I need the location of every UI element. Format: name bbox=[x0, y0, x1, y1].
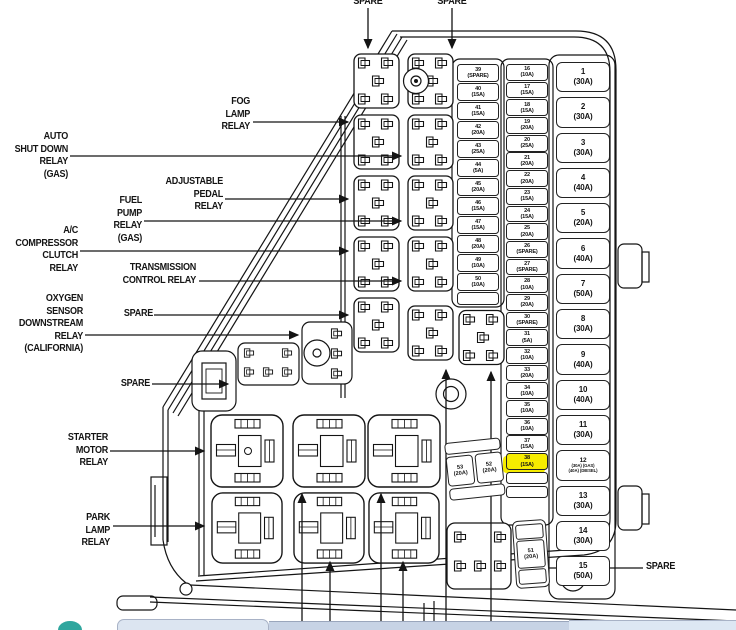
fuse-amps: (20A) bbox=[518, 553, 544, 561]
label-spare-top-right: SPARE bbox=[419, 0, 484, 8]
fuse-amps: (15A) bbox=[507, 214, 547, 220]
fuse-number: 1 bbox=[557, 67, 609, 77]
fuse-cell: 4 (40A) bbox=[556, 168, 610, 198]
fuse-cell: 50 (10A) bbox=[457, 273, 499, 291]
fuse-amps: (10A) bbox=[507, 285, 547, 291]
bottom-spare-socket bbox=[447, 523, 511, 589]
fuse-column-16-38: 16 (10A) 17 (15A) 18 (15A) 19 (20A) 20 (… bbox=[506, 64, 548, 499]
fuse-amps: (25A) bbox=[507, 143, 547, 149]
fuse-amps: (50A) bbox=[557, 571, 609, 581]
fuse-cell: 12 (30A) (GAS) (40A) (DIESEL) bbox=[556, 450, 610, 480]
fuse-cell: 26 (SPARE) bbox=[506, 241, 548, 258]
fuse-number: 3 bbox=[557, 138, 609, 148]
fuse-cell: 37 (15A) bbox=[506, 435, 548, 452]
fuse-amps: (15A) bbox=[458, 225, 498, 231]
fuse-cell: 40 (15A) bbox=[457, 83, 499, 101]
fuse-amps: (20A) bbox=[507, 125, 547, 131]
fuse-amps: (10A) bbox=[458, 282, 498, 288]
fuse-amps: (20A) bbox=[557, 218, 609, 228]
fuse-column-39-50: 39 (SPARE) 40 (15A) 41 (15A) 42 (20A) 43… bbox=[457, 64, 499, 306]
taskbar-tab[interactable] bbox=[117, 619, 269, 630]
fuse-cell: 29 (20A) bbox=[506, 294, 548, 311]
fuse-amps: (10A) bbox=[507, 408, 547, 414]
fuse-amps: (10A) bbox=[507, 355, 547, 361]
fuse-cell: 31 (5A) bbox=[506, 329, 548, 346]
fuse-cell: 32 (10A) bbox=[506, 347, 548, 364]
fuse-amps: (15A) bbox=[507, 196, 547, 202]
fuse-cell: 39 (SPARE) bbox=[457, 64, 499, 82]
label-fog-lamp-relay: FOG LAMP RELAY bbox=[164, 95, 250, 133]
fuse-number: 13 bbox=[557, 491, 609, 501]
fuse-cell: 48 (20A) bbox=[457, 235, 499, 253]
fuse-amps: (SPARE) bbox=[507, 249, 547, 255]
power-relays bbox=[211, 415, 440, 563]
fuse-amps: (20A) bbox=[458, 244, 498, 250]
fuse-number: 10 bbox=[557, 385, 609, 395]
fuse-amps: (20A) bbox=[507, 302, 547, 308]
fuse-amps: (20A) bbox=[507, 373, 547, 379]
fuse-amps: (30A) bbox=[557, 430, 609, 440]
fuse-cell: 6 (40A) bbox=[556, 238, 610, 268]
label-starter-motor-relay: STARTER MOTOR RELAY bbox=[22, 431, 108, 469]
fuse-box-diagram: SPARE SPARE FOG LAMP RELAY AUTO SHUT DOW… bbox=[0, 0, 736, 630]
fuse-cell: 20 (25A) bbox=[506, 135, 548, 152]
fuse-cell: 7 (50A) bbox=[556, 274, 610, 304]
fuse-number: 14 bbox=[557, 526, 609, 536]
fuse-cell: 28 (10A) bbox=[506, 276, 548, 293]
fuse-amps: (10A) bbox=[507, 391, 547, 397]
taskbar-strip bbox=[269, 621, 569, 630]
label-transmission-control-relay: TRANSMISSION CONTROL RELAY bbox=[67, 261, 196, 286]
fuse-amps: (40A) bbox=[557, 360, 609, 370]
fuse-amps: (15A) bbox=[458, 111, 498, 117]
fuse-cell: 8 (30A) bbox=[556, 309, 610, 339]
fuse-number: 2 bbox=[557, 102, 609, 112]
fuse-cell: 16 (10A) bbox=[506, 64, 548, 81]
fuse-amps: (30A) bbox=[557, 501, 609, 511]
fuse-cluster-52-53: 53 (20A) 52 (20A) bbox=[444, 437, 508, 503]
fuse-column-1-15: 1 (30A) 2 (30A) 3 (30A) 4 (40A) bbox=[556, 62, 610, 591]
fuse-cell-51: 51 (20A) bbox=[516, 539, 546, 569]
fuse-amps: (5A) bbox=[507, 338, 547, 344]
fuse-cell-52: 52 (20A) bbox=[474, 451, 504, 484]
fuse-cell: 38 (15A) bbox=[506, 453, 548, 470]
fuse-cell: 21 (20A) bbox=[506, 152, 548, 169]
fuse-cell: 44 (5A) bbox=[457, 159, 499, 177]
empty-fuse-slot bbox=[518, 568, 547, 585]
fuse-cell: 11 (30A) bbox=[556, 415, 610, 445]
fuse-cell: 46 (15A) bbox=[457, 197, 499, 215]
fuse-cell: 23 (15A) bbox=[506, 188, 548, 205]
fuse-cell: 33 (20A) bbox=[506, 365, 548, 382]
fuse-amps: (10A) bbox=[507, 426, 547, 432]
fuse-amps: (50A) bbox=[557, 289, 609, 299]
taskbar-strip bbox=[569, 620, 736, 630]
label-park-lamp-relay: PARK LAMP RELAY bbox=[24, 511, 110, 549]
fuse-amps: (40A) bbox=[557, 395, 609, 405]
fuse-amps: (5A) bbox=[458, 168, 498, 174]
fuse-amps: (15A) bbox=[507, 90, 547, 96]
fuse-cell: 47 (15A) bbox=[457, 216, 499, 234]
fuse-cell: 34 (10A) bbox=[506, 382, 548, 399]
fuse-amps: (20A) bbox=[477, 466, 503, 475]
fuse-amps: (40A) bbox=[557, 254, 609, 264]
fuse-amps: (30A) bbox=[557, 148, 609, 158]
fuse-amps: (20A) bbox=[507, 161, 547, 167]
fuse-amps: (20A) bbox=[458, 187, 498, 193]
fuse-cell: 49 (10A) bbox=[457, 254, 499, 272]
fuse-number: 4 bbox=[557, 173, 609, 183]
label-spare-bottom: SPARE bbox=[646, 560, 715, 573]
fuse-amps: (10A) bbox=[507, 72, 547, 78]
fuse-amps: (15A) bbox=[507, 444, 547, 450]
fuse-cell: 42 (20A) bbox=[457, 121, 499, 139]
fuse-cell: 27 (SPARE) bbox=[506, 259, 548, 276]
fuse-cell: 13 (30A) bbox=[556, 486, 610, 516]
fuse-cluster-51: 51 (20A) bbox=[512, 519, 551, 589]
fuse-cell: 25 (20A) bbox=[506, 223, 548, 240]
fuse-amps: (15A) bbox=[507, 462, 547, 468]
fuse-cell: 14 (30A) bbox=[556, 521, 610, 551]
fuse-amps: (30A) bbox=[557, 77, 609, 87]
fuse-amps: (SPARE) bbox=[507, 320, 547, 326]
fuse-cell: 18 (15A) bbox=[506, 99, 548, 116]
fuse-amps: (15A) bbox=[458, 206, 498, 212]
fuse-amps: (SPARE) bbox=[507, 267, 547, 273]
fuse-cell: 22 (20A) bbox=[506, 170, 548, 187]
fuse-cell: 24 (15A) bbox=[506, 206, 548, 223]
fuse-cell-53: 53 (20A) bbox=[445, 454, 475, 487]
fuse-cell: 1 (30A) bbox=[556, 62, 610, 92]
fuse-cell: 3 (30A) bbox=[556, 133, 610, 163]
fuse-amps: (10A) bbox=[458, 263, 498, 269]
screw-post-top bbox=[404, 69, 429, 94]
fuse-number: 9 bbox=[557, 350, 609, 360]
fuse-amps: (20A) bbox=[458, 130, 498, 136]
fuse-cell bbox=[506, 486, 548, 498]
fuse-amps: (30A) bbox=[557, 536, 609, 546]
fuse-number: 11 bbox=[557, 420, 609, 430]
fuse-cell bbox=[457, 292, 499, 305]
fuse-cell: 30 (SPARE) bbox=[506, 312, 548, 329]
fuse-cell: 45 (20A) bbox=[457, 178, 499, 196]
fuse-number: 15 bbox=[557, 561, 609, 571]
fuse-cell: 5 (20A) bbox=[556, 203, 610, 233]
fuse-amps: (25A) bbox=[458, 149, 498, 155]
label-spare-mid-lower: SPARE bbox=[66, 377, 150, 390]
fuse-cell: 35 (10A) bbox=[506, 400, 548, 417]
fuse-number: 5 bbox=[557, 208, 609, 218]
fuse-amps: (20A) bbox=[507, 179, 547, 185]
label-spare-top-left: SPARE bbox=[335, 0, 400, 8]
fuse-cell: 15 (50A) bbox=[556, 556, 610, 586]
fuse-amps: (15A) bbox=[507, 108, 547, 114]
fuse-number: 7 bbox=[557, 279, 609, 289]
fuse-cell: 43 (25A) bbox=[457, 140, 499, 158]
fuse-cell: 2 (30A) bbox=[556, 97, 610, 127]
empty-fuse-slot bbox=[515, 523, 544, 540]
fuse-amps: (20A) bbox=[507, 232, 547, 238]
fuse-cell: 36 (10A) bbox=[506, 418, 548, 435]
fuse-cell: 41 (15A) bbox=[457, 102, 499, 120]
fuse-amps-alt: (40A) (DIESEL) bbox=[557, 469, 609, 474]
label-auto-shutdown-relay: AUTO SHUT DOWN RELAY (GAS) bbox=[10, 130, 68, 180]
fuse-cell: 10 (40A) bbox=[556, 380, 610, 410]
fuse-amps: (30A) bbox=[557, 324, 609, 334]
fuse-cell: 17 (15A) bbox=[506, 82, 548, 99]
fuse-cell: 19 (20A) bbox=[506, 117, 548, 134]
fuse-number: 8 bbox=[557, 314, 609, 324]
fuse-amps: (SPARE) bbox=[458, 73, 498, 79]
fuse-amps: (40A) bbox=[557, 183, 609, 193]
fuse-amps: (20A) bbox=[448, 469, 474, 478]
fuse-amps: (15A) bbox=[458, 92, 498, 98]
fuse-number: 6 bbox=[557, 244, 609, 254]
fuse-cell: 9 (40A) bbox=[556, 344, 610, 374]
label-oxygen-sensor-relay: OXYGEN SENSOR DOWNSTREAM RELAY (CALIFORN… bbox=[12, 292, 83, 355]
fuse-cell bbox=[506, 472, 548, 484]
fuse-amps: (30A) bbox=[557, 112, 609, 122]
